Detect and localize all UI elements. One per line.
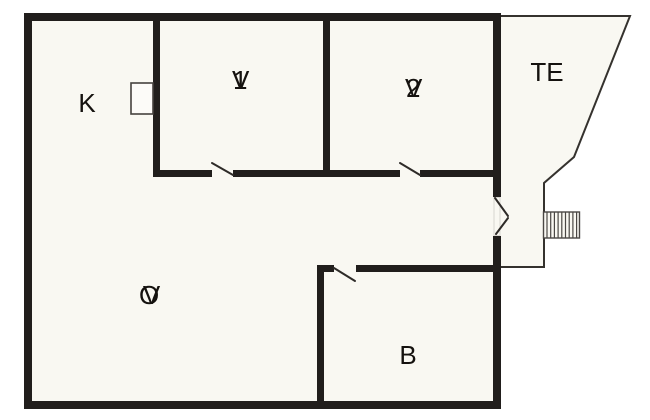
- room-label-bathroom: B: [399, 342, 416, 368]
- room-label-terrace: TE: [530, 59, 563, 85]
- interior-wall-bedrooms-front-right: [420, 170, 493, 177]
- interior-wall-bedroom1-bedroom2: [323, 21, 330, 177]
- interior-wall-bathroom-top-left: [317, 265, 334, 272]
- interior-wall-bathroom-left: [317, 265, 324, 401]
- interior-wall-bedrooms-front-left: [153, 170, 212, 177]
- room-label-living-room: OV: [139, 282, 144, 308]
- floor-area: [24, 13, 501, 409]
- room-label-kitchen: K: [78, 90, 95, 116]
- outer-wall-right-lower: [493, 236, 501, 409]
- kitchen-fixture: [131, 83, 153, 114]
- outer-wall-top: [24, 13, 501, 21]
- floor-plan: K V1 V2 TE OV B: [0, 0, 650, 420]
- interior-wall-bathroom-top-right: [356, 265, 493, 272]
- interior-wall-kitchen-bedroom1: [153, 21, 160, 177]
- outer-wall-bottom: [24, 401, 501, 409]
- outer-wall-right-upper: [493, 13, 501, 197]
- outer-wall-left: [24, 13, 32, 409]
- interior-wall-bedrooms-front-mid: [233, 170, 400, 177]
